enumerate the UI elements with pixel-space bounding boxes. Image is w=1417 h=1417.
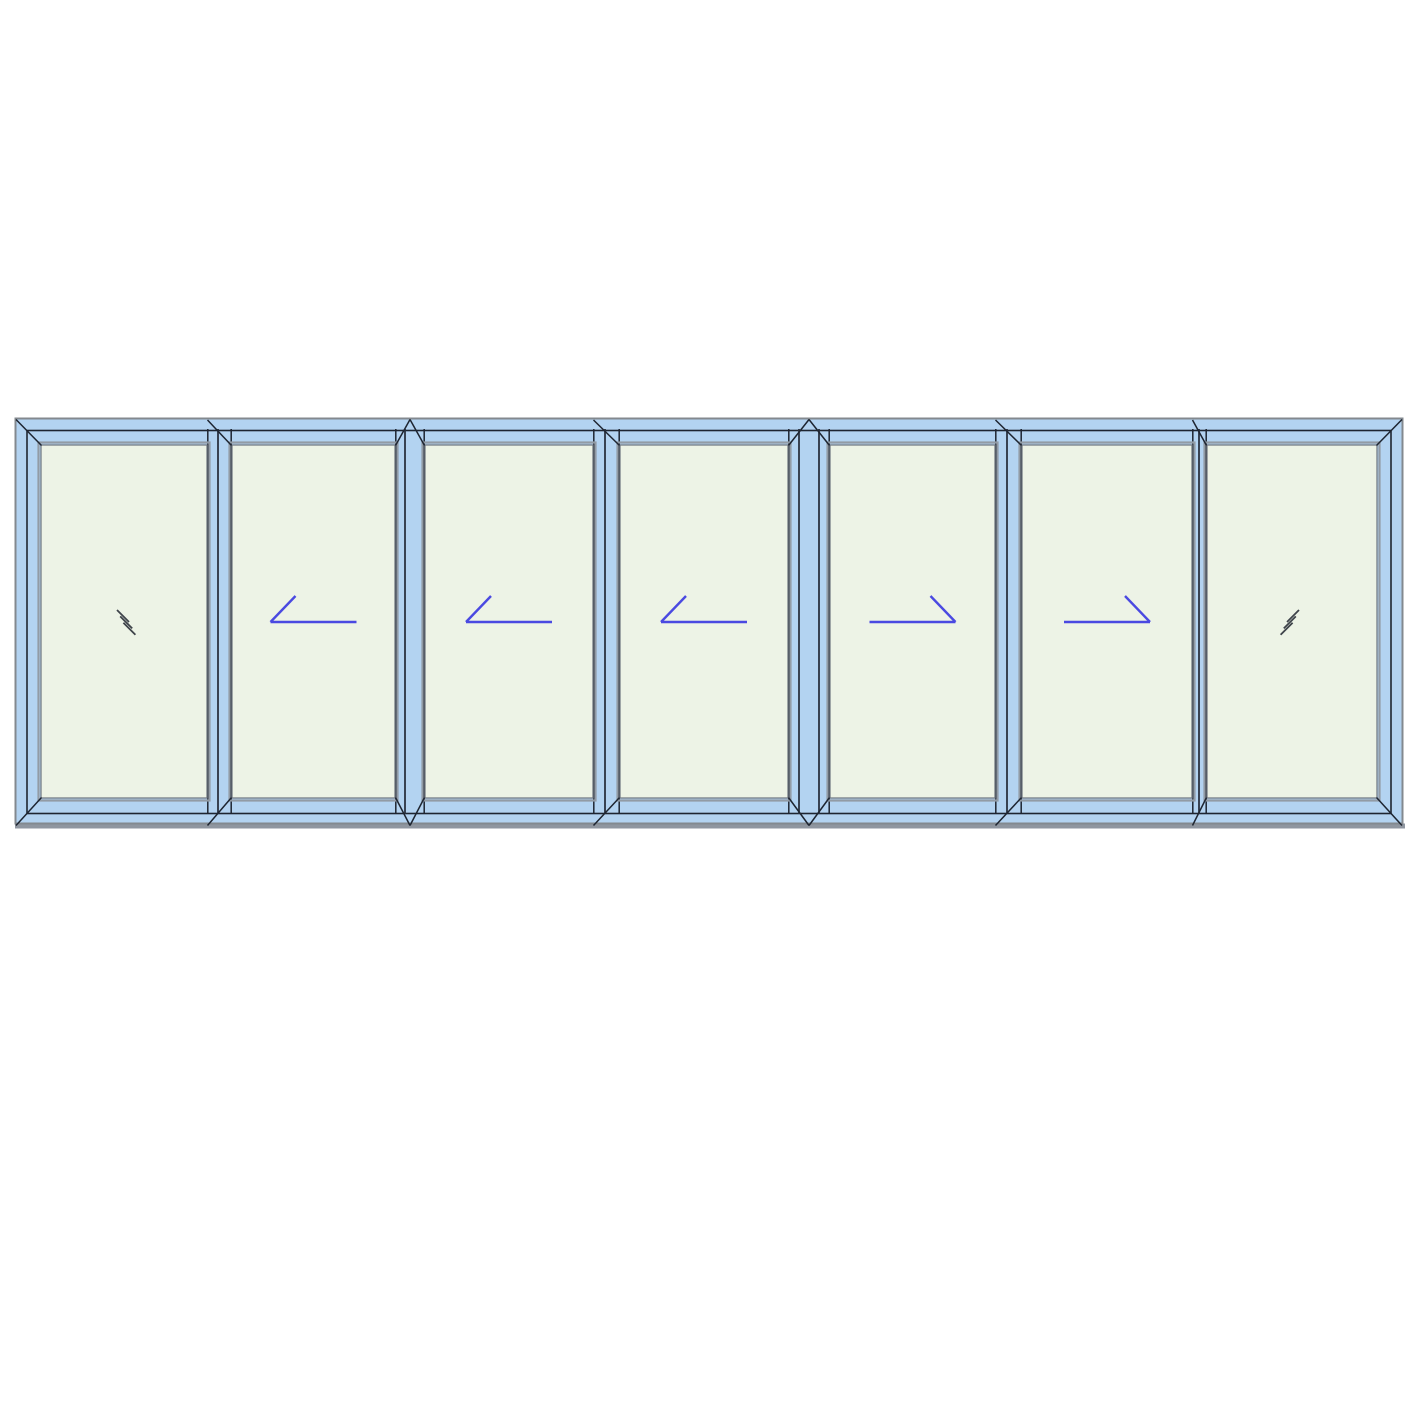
panel-4-slides-left	[618, 443, 791, 801]
panel-5-slides-right	[828, 443, 998, 801]
panel-7-fixed	[1205, 443, 1380, 801]
drawing-canvas	[0, 0, 1417, 1417]
panel-glass-7[interactable]	[1207, 445, 1377, 798]
panel-1-fixed	[39, 443, 210, 801]
panel-6-slides-right	[1020, 443, 1195, 801]
panel-glass-1[interactable]	[41, 445, 207, 798]
panel-3-slides-left	[423, 443, 596, 801]
window-elevation-drawing	[0, 0, 1417, 1417]
panel-2-slides-left	[230, 443, 398, 801]
